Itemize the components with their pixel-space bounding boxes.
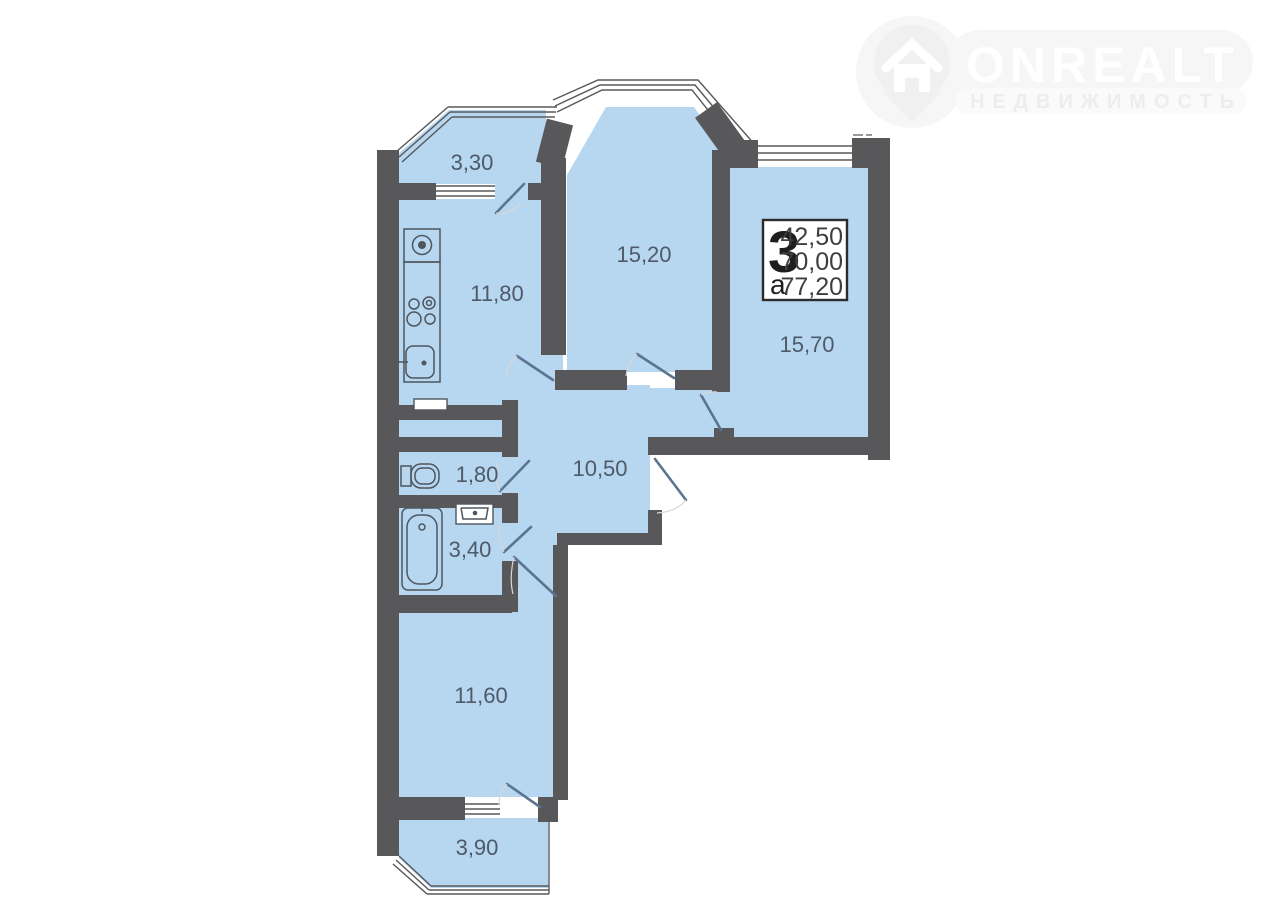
label-balcony-top-area: 3,30 — [451, 150, 494, 175]
info-area-2: 70,00 — [780, 248, 843, 276]
label-bedroom-bottom-area: 11,60 — [454, 683, 507, 708]
info-area-3: 77,20 — [780, 273, 843, 301]
info-area-1: 42,50 — [780, 223, 843, 251]
label-balcony-bottom-area: 3,90 — [456, 835, 499, 860]
floorplan-page: ONREALT НЕДВИЖИМОСТЬ — [0, 0, 1272, 904]
apartment-info-box: 3 а 42,50 70,00 77,20 — [763, 220, 847, 301]
duct-gap — [399, 420, 510, 437]
entry-door — [655, 459, 686, 513]
label-wc-area: 1,80 — [456, 462, 499, 487]
washing-machine-icon — [404, 229, 440, 262]
watermark-logo: ONREALT НЕДВИЖИМОСТЬ — [856, 16, 1253, 128]
label-kitchen-area: 11,80 — [470, 281, 523, 306]
label-bath-area: 3,40 — [449, 537, 492, 562]
floorplan-canvas: ONREALT НЕДВИЖИМОСТЬ — [0, 0, 1272, 904]
label-living-area: 15,20 — [616, 242, 671, 267]
room-hall-strip — [563, 388, 730, 437]
vent-hatch — [414, 399, 447, 410]
brand-text: ONREALT — [966, 37, 1239, 93]
label-bedroom-right-area: 15,70 — [779, 332, 834, 357]
bedroom-right-window — [758, 140, 852, 167]
label-hall-area: 10,50 — [572, 456, 627, 481]
bath-sink-icon — [456, 500, 493, 524]
bedroom-balcony-window — [465, 800, 500, 818]
brand-tagline: НЕДВИЖИМОСТЬ — [970, 91, 1242, 113]
kitchen-balcony-window — [436, 184, 495, 199]
